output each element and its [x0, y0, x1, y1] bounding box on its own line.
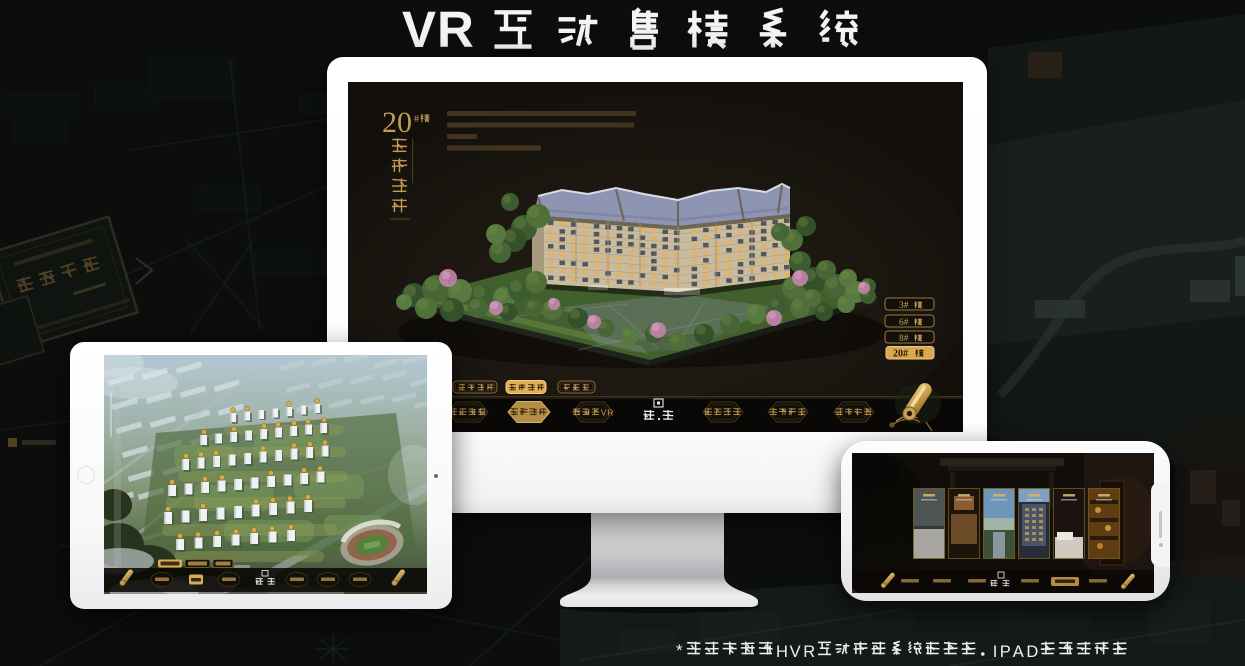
svg-text:20: 20: [382, 106, 412, 139]
svg-text:6#: 6#: [899, 318, 909, 328]
svg-text:*: *: [676, 641, 683, 660]
svg-text:I: I: [993, 643, 998, 661]
svg-text:V: V: [601, 408, 607, 418]
svg-text:V: V: [790, 643, 801, 661]
svg-text:R: R: [803, 643, 815, 661]
svg-text:20#: 20#: [893, 349, 908, 360]
svg-text:H: H: [776, 643, 788, 661]
svg-text:8#: 8#: [899, 334, 909, 344]
svg-text:A: A: [1013, 643, 1024, 661]
svg-text:R: R: [607, 408, 613, 418]
svg-text:P: P: [1000, 643, 1011, 661]
svg-text:#: #: [414, 114, 419, 125]
svg-text:D: D: [1026, 643, 1038, 661]
svg-text:VR: VR: [402, 1, 475, 58]
svg-text:3#: 3#: [899, 301, 909, 311]
